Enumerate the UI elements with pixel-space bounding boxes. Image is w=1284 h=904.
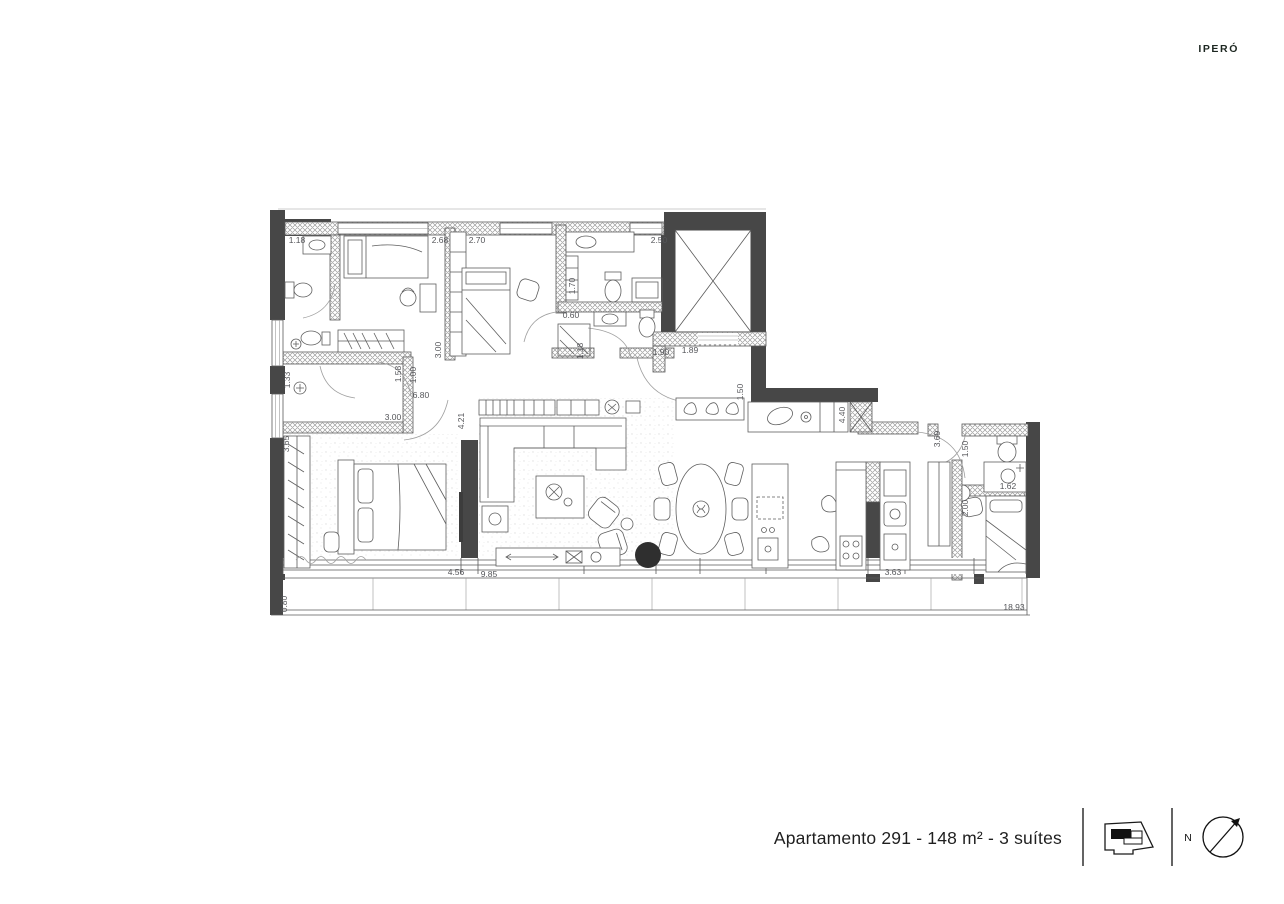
suite3-furniture — [928, 436, 1026, 572]
dining-furniture — [654, 461, 748, 556]
elevator-shaft — [675, 230, 751, 344]
floor-plan: 1.182.682.702.501.700.601.181.901.893.00… — [270, 209, 1040, 615]
caption: Apartamento 291 - 148 m² - 3 suítes — [774, 828, 1062, 848]
suite1-furniture — [285, 236, 436, 312]
dimension-label: 2.00 — [960, 499, 970, 516]
north-compass-icon — [1203, 817, 1243, 857]
dimension-label: 3.65 — [281, 435, 291, 452]
dimension-label: 0.80 — [279, 595, 289, 612]
laundry-furniture — [748, 402, 872, 432]
balcony — [271, 578, 1030, 615]
brand-logo: IPERÓ — [1198, 42, 1239, 55]
dimension-label: 0.60 — [563, 310, 580, 320]
kitchen-furniture — [752, 462, 910, 570]
dimension-label: 1.58 — [393, 365, 403, 382]
dimension-label: 1.18 — [289, 235, 306, 245]
dimension-label: 4.56 — [448, 567, 465, 577]
dimension-label: 1.50 — [735, 383, 745, 400]
dimension-label: 3.69 — [932, 430, 942, 447]
dimension-label: 1.33 — [282, 371, 292, 388]
dimension-label: 9.85 — [481, 569, 498, 579]
dimension-label: 1.18 — [575, 342, 585, 359]
dimension-label: 18.93 — [1003, 602, 1025, 612]
dimension-label: 4.21 — [456, 412, 466, 429]
entry-planter — [676, 398, 744, 420]
dimension-label: 1.70 — [567, 277, 577, 294]
structural-column — [635, 542, 661, 568]
dimension-label: 4.40 — [837, 406, 847, 423]
dimension-label: 6.80 — [413, 390, 430, 400]
dimension-label: 1.00 — [408, 366, 418, 383]
dimension-label: 1.89 — [682, 345, 699, 355]
dimension-label: 2.70 — [469, 235, 486, 245]
dimension-label: 3.63 — [885, 567, 902, 577]
dimension-label: 1.62 — [1000, 481, 1017, 491]
dimension-label: 1.90 — [653, 347, 670, 357]
dimension-label: 1.50 — [960, 440, 970, 457]
dimension-label: 2.50 — [651, 235, 668, 245]
north-label: N — [1184, 832, 1192, 844]
footer: Apartamento 291 - 148 m² - 3 suítes N — [774, 808, 1243, 866]
suite2-furniture — [450, 232, 541, 356]
dimension-label: 3.00 — [385, 412, 402, 422]
dimension-label: 2.68 — [432, 235, 449, 245]
tv-panel — [459, 492, 463, 542]
dimension-label: 3.00 — [433, 341, 443, 358]
elevator-door — [698, 333, 738, 344]
building-footprint-icon — [1105, 822, 1153, 854]
page: IPERÓ — [0, 0, 1284, 904]
